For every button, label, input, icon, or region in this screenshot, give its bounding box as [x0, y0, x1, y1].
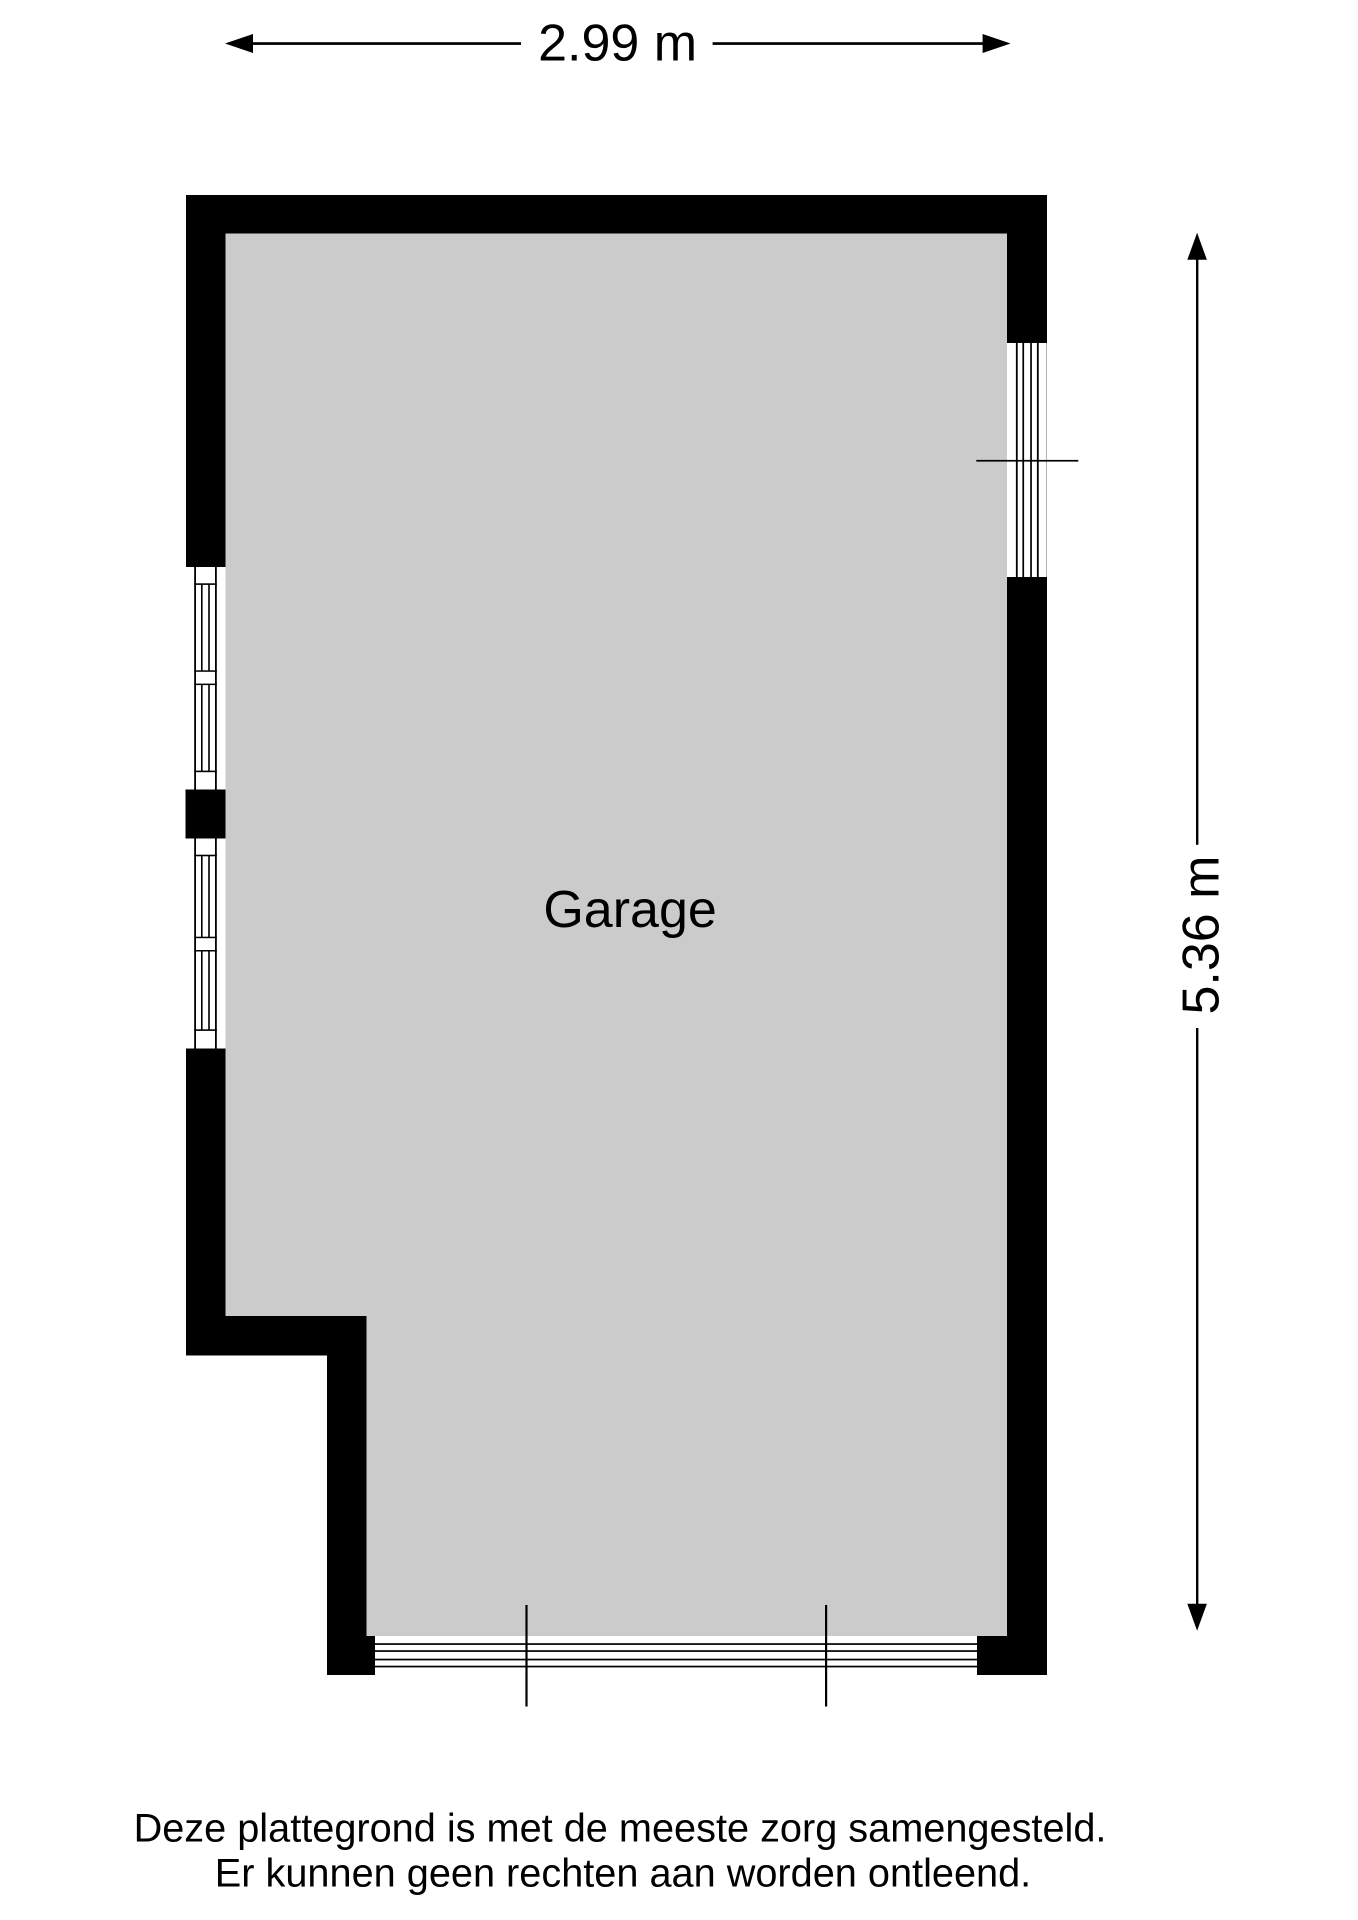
svg-text:Garage: Garage: [543, 881, 716, 939]
svg-text:2.99 m: 2.99 m: [538, 15, 697, 73]
svg-text:Deze plattegrond is met de mee: Deze plattegrond is met de meeste zorg s…: [134, 1807, 1107, 1851]
svg-text:5.36 m: 5.36 m: [1172, 856, 1230, 1015]
svg-text:Er kunnen geen rechten aan wor: Er kunnen geen rechten aan worden ontlee…: [215, 1852, 1031, 1896]
